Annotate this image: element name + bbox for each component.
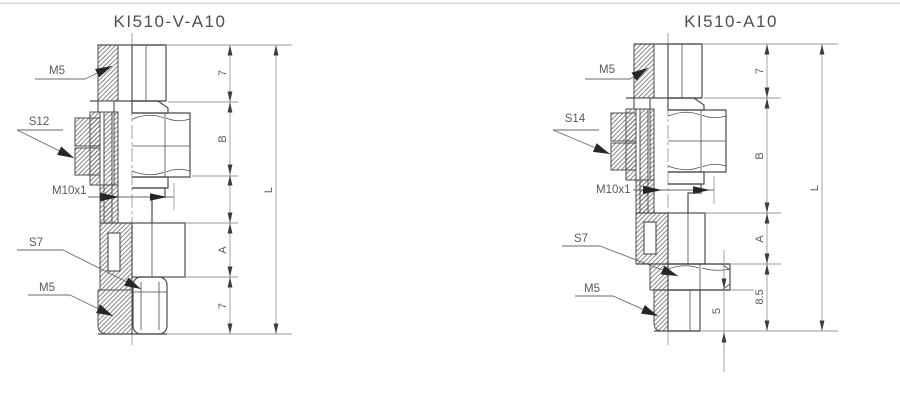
- drawing-right: KI510-A10: [553, 12, 838, 372]
- technical-drawing-canvas: KI510-V-A10: [0, 0, 900, 417]
- callouts: M5 S12 M10x1 S7 M5: [17, 65, 174, 316]
- hex-nut-section-lower: [75, 148, 100, 175]
- hex-chamfers: [132, 115, 190, 175]
- dim-label-top: 7: [754, 68, 766, 74]
- dim-label-body: A: [754, 235, 766, 243]
- top-stud: [132, 45, 166, 101]
- dim-label-bottom: 7: [217, 303, 229, 309]
- hex-nut-section-lower: [611, 143, 636, 170]
- drawing-title: KI510-A10: [684, 12, 778, 31]
- hex-nut: [132, 113, 190, 177]
- lower-collar: [668, 172, 704, 184]
- dim-label-hex: B: [754, 152, 766, 159]
- bottom-stem: [668, 290, 700, 331]
- callout-thread-mid: M10x1: [52, 185, 87, 197]
- callout-hex-lower: S7: [574, 233, 588, 245]
- dim-label-top: 7: [217, 70, 229, 76]
- lower-body: [132, 223, 185, 277]
- top-stud: [668, 44, 702, 98]
- drawing-title: KI510-V-A10: [114, 12, 227, 31]
- callout-thread-top: M5: [49, 65, 65, 77]
- bottom-body-section: [654, 290, 668, 331]
- collar: [668, 98, 704, 110]
- dimension-chain: 7 B A 7 L: [166, 45, 292, 334]
- page-top-border: [0, 3, 900, 4]
- dim-label-overall: L: [263, 187, 275, 193]
- thread-stem: [132, 188, 165, 223]
- callout-thread-top: M5: [599, 64, 615, 76]
- callout-hex-upper: S12: [29, 116, 49, 128]
- collar: [132, 101, 168, 113]
- callout-hex-lower: S7: [29, 237, 43, 249]
- lower-body: [668, 213, 705, 264]
- dim-label-overall: L: [809, 185, 821, 191]
- callout-thread-bottom: M5: [39, 282, 55, 294]
- hex-nut-section-upper: [75, 118, 100, 146]
- bottom-body-section: [98, 290, 132, 334]
- dim-label-bottom: 8.5: [754, 289, 766, 304]
- callout-hex-upper: S14: [565, 113, 586, 125]
- lower-collar: [132, 177, 168, 188]
- hex-nut-section-upper: [611, 113, 636, 141]
- dim-label-hex: B: [217, 135, 229, 142]
- technical-drawing-page: KI510-V-A10: [0, 0, 900, 417]
- drawing-left: KI510-V-A10: [17, 12, 292, 345]
- dimension-chain: 7 B A 8.5 5 L: [700, 44, 838, 372]
- dim-label-stem: 5: [711, 308, 723, 314]
- callout-thread-mid: M10x1: [596, 184, 631, 196]
- dim-label-body: A: [217, 246, 229, 254]
- callout-thread-bottom: M5: [584, 283, 600, 295]
- bottom-sleeve: [133, 277, 167, 334]
